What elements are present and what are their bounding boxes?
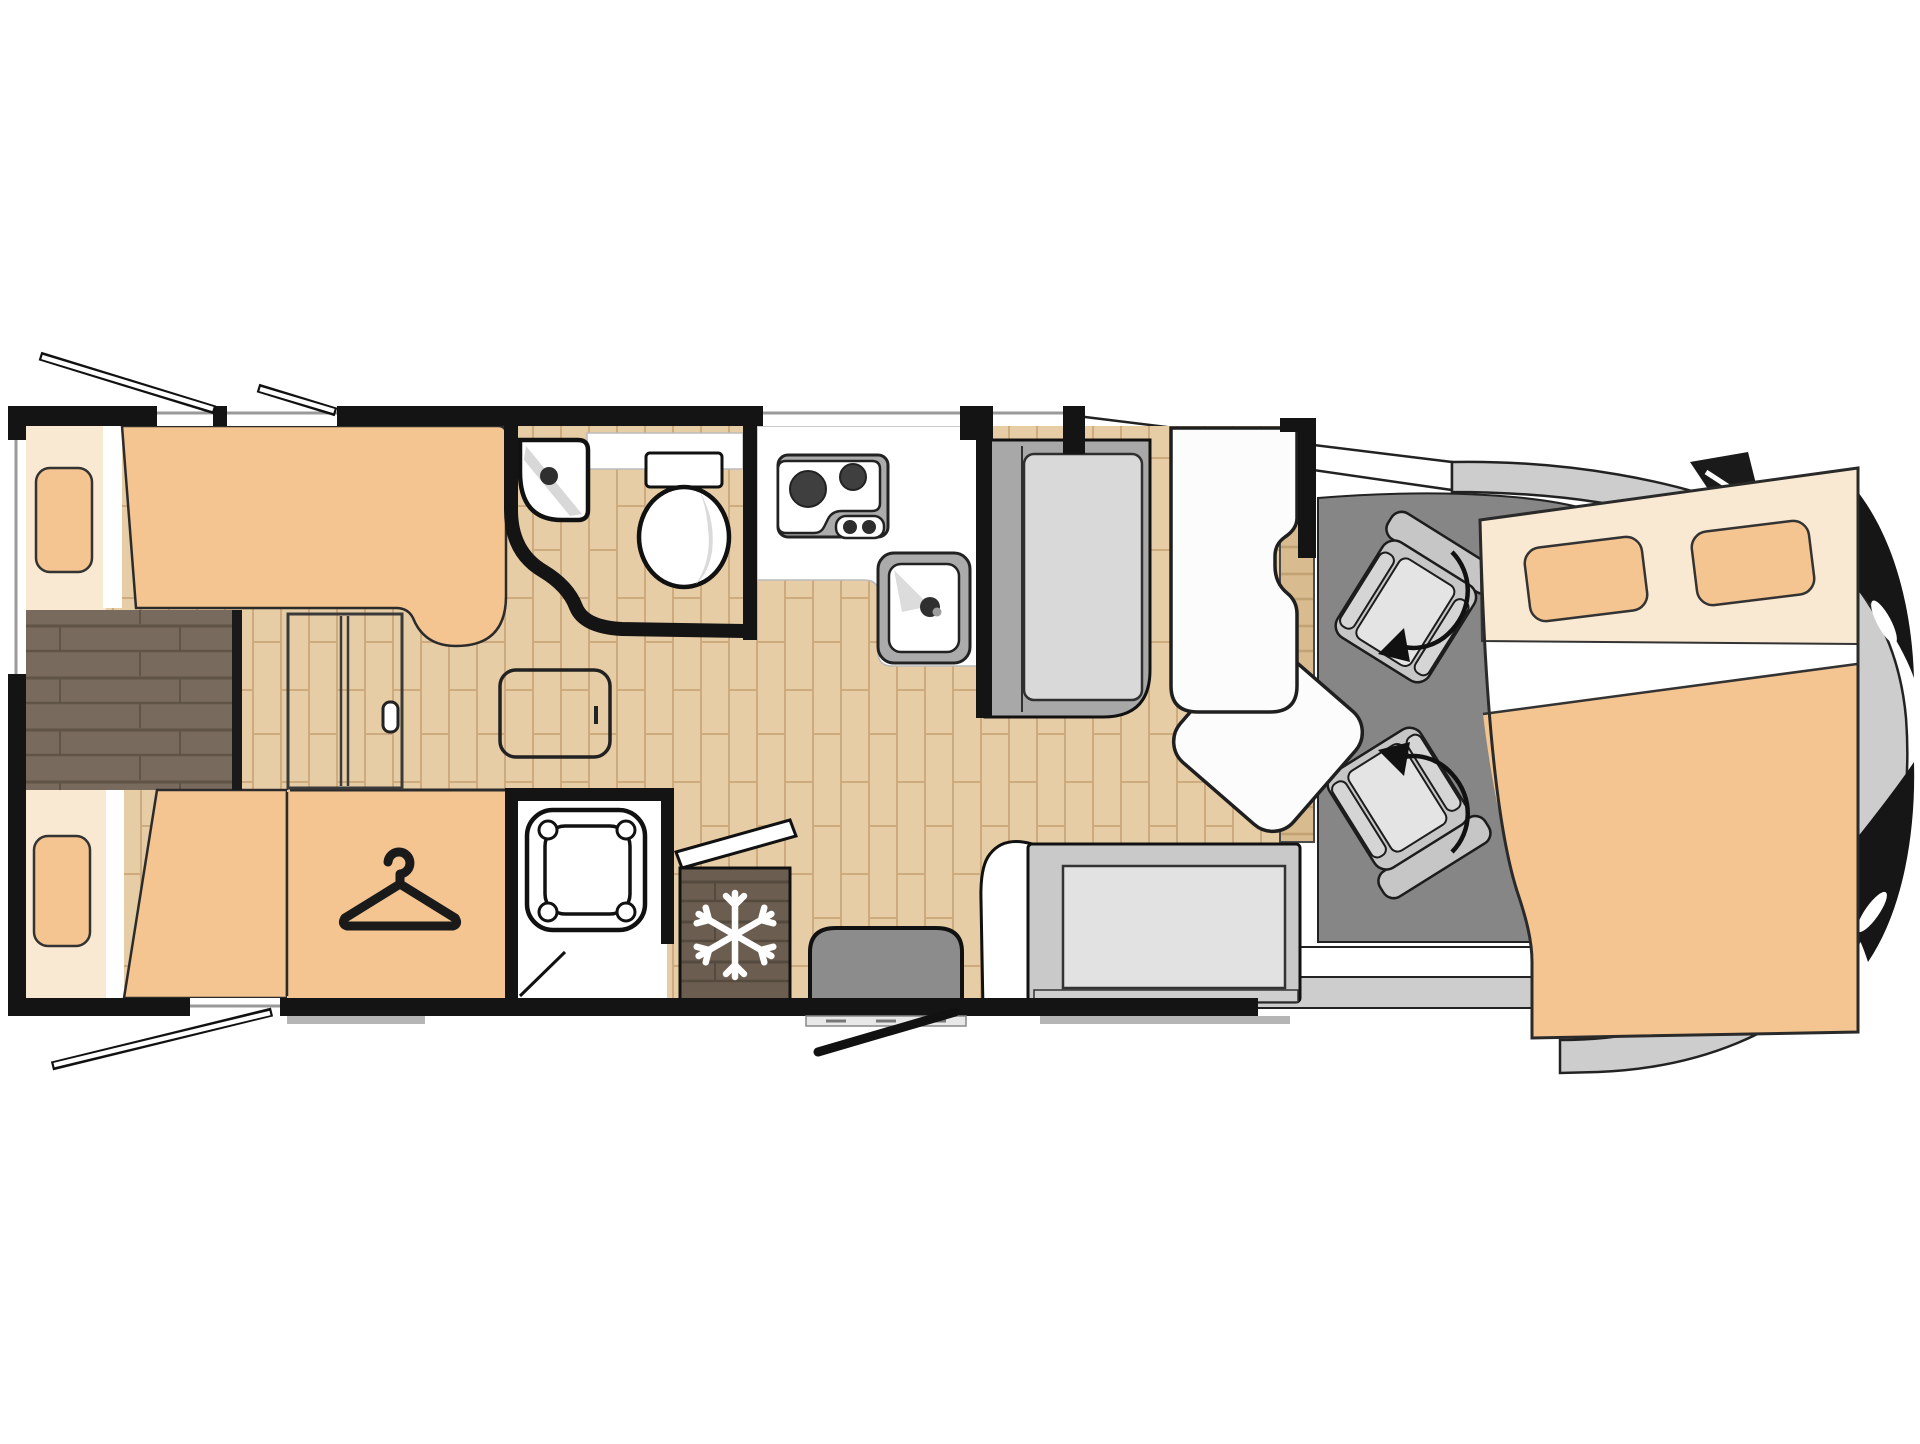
- floorplan-stage: [0, 0, 1920, 1440]
- toilet-tank: [646, 453, 722, 487]
- travel-bench: [985, 440, 1150, 717]
- window: [993, 406, 1063, 426]
- window: [8, 440, 26, 674]
- entry-step-mat: [810, 928, 962, 1006]
- toilet-bowl: [639, 487, 729, 587]
- motorhome-floorplan: [0, 0, 1920, 1440]
- kitchen-sink: [878, 553, 970, 663]
- fridge: [680, 868, 790, 1002]
- rear-walkway: [26, 610, 233, 790]
- pillow: [36, 468, 92, 572]
- pillow: [34, 836, 90, 946]
- bench-armrest: [981, 842, 1032, 1010]
- side-table: [500, 670, 610, 757]
- faucet-icon: [540, 467, 558, 485]
- exterior-sills: [287, 1016, 1290, 1026]
- kitchen-hob: [778, 455, 888, 538]
- drop-down-bed: [1480, 468, 1858, 1038]
- side-bench: [981, 842, 1300, 1010]
- open-window-flap: [52, 1012, 272, 1066]
- rear-bed-lower: [26, 790, 287, 998]
- wardrobe: [287, 790, 505, 998]
- window: [763, 406, 960, 426]
- pillow: [1690, 519, 1816, 607]
- open-window-flap: [40, 356, 215, 410]
- pillow: [1523, 535, 1649, 623]
- door-handle-icon: [383, 702, 398, 732]
- hob-burner-icon: [790, 471, 826, 507]
- shower: [505, 788, 674, 998]
- bed-blanket: [1483, 664, 1857, 1038]
- hob-burner-icon: [840, 464, 866, 490]
